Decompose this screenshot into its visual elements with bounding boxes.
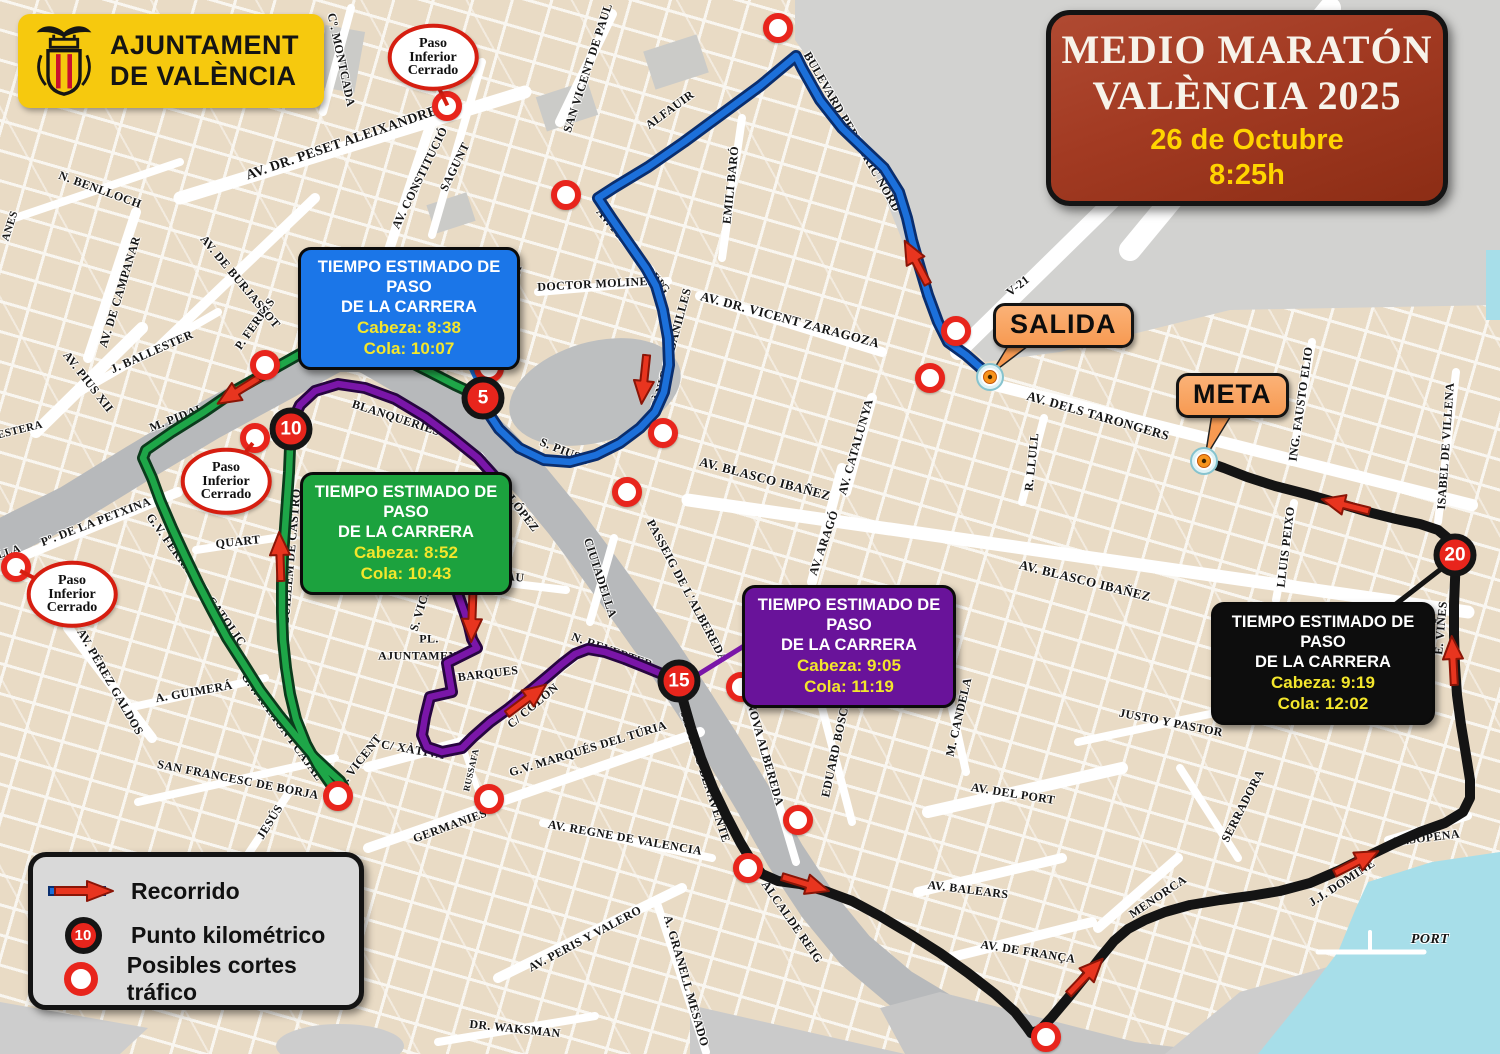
event-title: MEDIO MARATÓN xyxy=(1051,27,1443,73)
event-start-time: 8:25h xyxy=(1051,158,1443,193)
info-box-title: TIEMPO ESTIMADO DE PASO xyxy=(308,482,504,522)
legend-label: Recorrido xyxy=(131,878,240,905)
event-date: 26 de Octubre xyxy=(1051,123,1443,158)
info-box-title: DE LA CARRERA xyxy=(308,522,504,542)
traffic-cut-icon xyxy=(64,962,98,996)
pass-time-info-box: TIEMPO ESTIMADO DE PASO DE LA CARRERA Ca… xyxy=(1211,602,1435,725)
route-arrow-icon xyxy=(47,878,119,904)
legend-row-route: Recorrido xyxy=(47,869,359,913)
pass-time-info-box: TIEMPO ESTIMADO DE PASO DE LA CARRERA Ca… xyxy=(298,247,520,370)
info-box-title: DE LA CARRERA xyxy=(1219,652,1427,672)
km-point-icon: 10 xyxy=(65,917,102,954)
tail-time: Cola: 10:43 xyxy=(308,563,504,584)
info-box-title: DE LA CARRERA xyxy=(306,297,512,317)
legend-box: Recorrido 10 Punto kilométrico Posibles … xyxy=(28,852,364,1010)
info-box-title: TIEMPO ESTIMADO DE PASO xyxy=(1219,612,1427,652)
legend-row-cuts: Posibles cortes tráfico xyxy=(47,957,359,1001)
pass-time-info-box: TIEMPO ESTIMADO DE PASO DE LA CARRERA Ca… xyxy=(742,585,956,708)
start-label: SALIDA xyxy=(993,303,1134,348)
pass-time-info-box: TIEMPO ESTIMADO DE PASO DE LA CARRERA Ca… xyxy=(300,472,512,595)
event-title: VALÈNCIA 2025 xyxy=(1051,73,1443,119)
coat-of-arms-icon xyxy=(28,21,100,101)
head-time: Cabeza: 8:52 xyxy=(308,542,504,563)
tail-time: Cola: 11:19 xyxy=(750,676,948,697)
info-box-title: DE LA CARRERA xyxy=(750,635,948,655)
event-title-card: MEDIO MARATÓN VALÈNCIA 2025 26 de Octubr… xyxy=(1046,10,1448,206)
finish-label: META xyxy=(1176,373,1289,418)
tail-time: Cola: 12:02 xyxy=(1219,693,1427,714)
info-box-title: TIEMPO ESTIMADO DE PASO xyxy=(306,257,512,297)
legend-row-km: 10 Punto kilométrico xyxy=(47,913,359,957)
info-box-title: TIEMPO ESTIMADO DE PASO xyxy=(750,595,948,635)
tail-time: Cola: 10:07 xyxy=(306,338,512,359)
legend-label: Punto kilométrico xyxy=(131,922,325,949)
legend-label: Posibles cortes tráfico xyxy=(127,952,359,1006)
head-time: Cabeza: 9:19 xyxy=(1219,672,1427,693)
logo-text: AJUNTAMENT DE VALÈNCIA xyxy=(110,30,299,92)
map-canvas: Cº. MONTCADAAV. DR. PESET ALEIXANDRESAN … xyxy=(0,0,1500,1054)
head-time: Cabeza: 8:38 xyxy=(306,317,512,338)
head-time: Cabeza: 9:05 xyxy=(750,655,948,676)
city-council-logo: AJUNTAMENT DE VALÈNCIA xyxy=(18,14,324,108)
